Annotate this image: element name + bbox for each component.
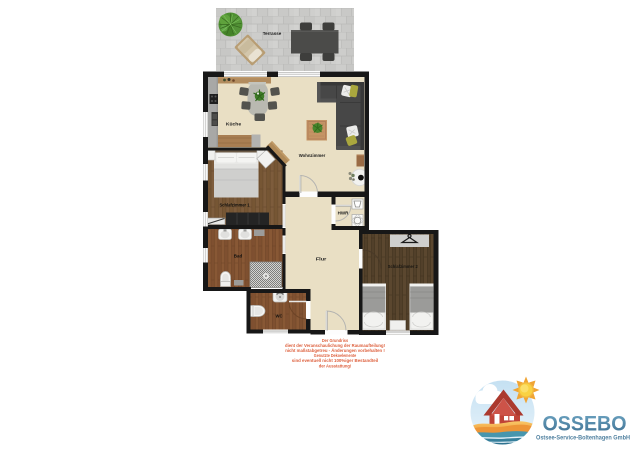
svg-text:Schlafzimmer 1: Schlafzimmer 1 bbox=[220, 203, 250, 209]
svg-text:Flur: Flur bbox=[316, 257, 327, 263]
svg-text:OSSEBO: OSSEBO bbox=[543, 412, 627, 436]
svg-text:Ostsee-Service-Boltenhagen Gmb: Ostsee-Service-Boltenhagen GmbH bbox=[536, 435, 630, 442]
svg-text:WC: WC bbox=[276, 314, 283, 320]
svg-text:Schlafzimmer 2: Schlafzimmer 2 bbox=[388, 264, 418, 270]
svg-text:Bad: Bad bbox=[234, 253, 243, 259]
svg-text:Küche: Küche bbox=[226, 122, 242, 128]
svg-text:Wohnzimmer: Wohnzimmer bbox=[299, 153, 326, 159]
svg-text:Terrasse: Terrasse bbox=[263, 31, 282, 37]
svg-text:HWR: HWR bbox=[338, 211, 349, 216]
svg-text:der Ausstattung!: der Ausstattung! bbox=[319, 363, 352, 368]
svg-text:nicht maßstabgetreu - Änderung: nicht maßstabgetreu - Änderungen vorbeha… bbox=[285, 347, 385, 353]
